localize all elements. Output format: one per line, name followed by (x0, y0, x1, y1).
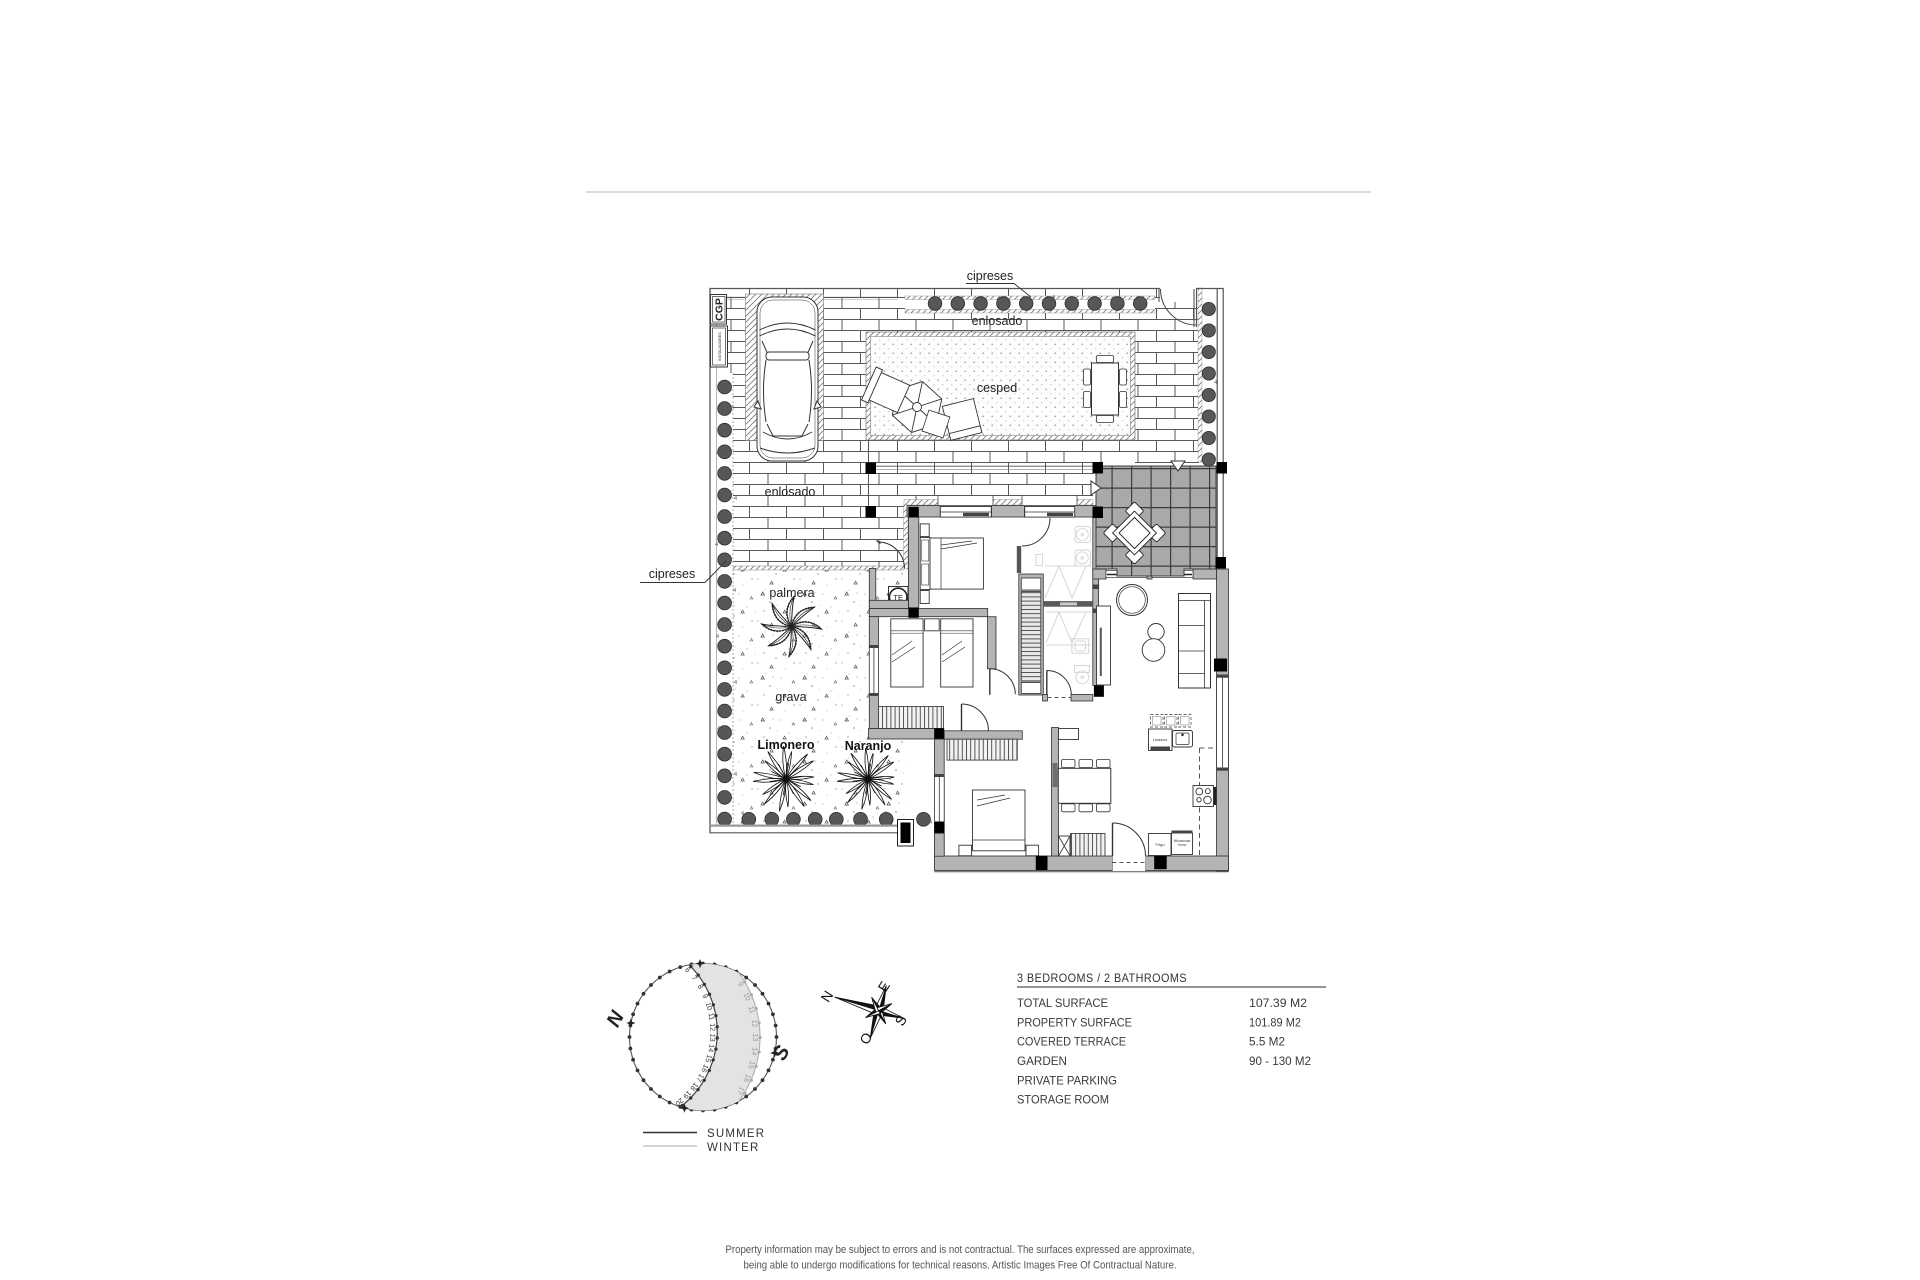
svg-text:PRIVATE PARKING: PRIVATE PARKING (1017, 1073, 1117, 1087)
svg-text:11: 11 (706, 1012, 716, 1021)
svg-text:WINTER: WINTER (707, 1142, 760, 1154)
svg-text:12: 12 (708, 1023, 717, 1031)
svg-text:SUMMER: SUMMER (707, 1128, 765, 1140)
svg-text:Horno: Horno (1178, 843, 1187, 847)
svg-text:4: 4 (1006, 302, 1009, 308)
svg-text:13: 13 (751, 1033, 760, 1041)
svg-text:Limonero: Limonero (758, 738, 815, 752)
svg-text:STORAGE ROOM: STORAGE ROOM (1017, 1093, 1109, 1107)
svg-text:5.5 M2: 5.5 M2 (1249, 1035, 1285, 1049)
svg-text:4: 4 (1203, 434, 1206, 440)
svg-text:4: 4 (734, 772, 737, 778)
svg-text:4: 4 (716, 634, 719, 640)
svg-text:3 BEDROOMS / 2 BATHROOMS: 3 BEDROOMS / 2 BATHROOMS (1017, 971, 1187, 985)
svg-text:cipreses: cipreses (967, 269, 1014, 283)
svg-text:cesped: cesped (977, 381, 1017, 395)
svg-text:4: 4 (741, 811, 744, 817)
svg-text:CGP: CGP (714, 298, 726, 321)
svg-text:4: 4 (884, 811, 887, 817)
svg-text:Frigo: Frigo (1155, 842, 1165, 847)
svg-text:4: 4 (812, 819, 815, 825)
svg-text:Naranjo: Naranjo (845, 739, 892, 753)
svg-text:cipreses: cipreses (649, 567, 696, 581)
svg-text:13: 13 (708, 1033, 718, 1042)
svg-text:4: 4 (929, 820, 932, 826)
svg-text:4: 4 (731, 405, 734, 411)
svg-text:COVERED TERRACE: COVERED TERRACE (1017, 1035, 1126, 1049)
svg-text:grava: grava (775, 690, 806, 704)
svg-text:INSTALACIONES: INSTALACIONES (718, 332, 722, 361)
svg-text:90 - 130 M2: 90 - 130 M2 (1249, 1054, 1311, 1068)
svg-text:GARDEN: GARDEN (1017, 1054, 1067, 1068)
svg-text:4: 4 (717, 726, 720, 732)
svg-text:12: 12 (750, 1019, 760, 1028)
svg-text:enlosado: enlosado (765, 485, 816, 499)
svg-text:being able to undergo modifica: being able to undergo modifications for … (744, 1260, 1177, 1272)
svg-text:4: 4 (1213, 326, 1216, 332)
svg-text:4: 4 (1052, 295, 1055, 301)
svg-text:palmera: palmera (769, 586, 814, 600)
svg-text:4: 4 (1214, 380, 1217, 386)
svg-text:4: 4 (716, 451, 719, 457)
svg-text:TOTAL SURFACE: TOTAL SURFACE (1017, 996, 1108, 1010)
svg-text:101.89 M2: 101.89 M2 (1249, 1015, 1301, 1029)
svg-text:4: 4 (1120, 303, 1123, 309)
svg-text:4: 4 (715, 542, 718, 548)
svg-text:4: 4 (734, 496, 737, 502)
svg-text:4: 4 (960, 296, 963, 302)
svg-text:107.39 M2: 107.39 M2 (1249, 996, 1307, 1010)
svg-text:4: 4 (733, 588, 736, 594)
svg-text:14: 14 (706, 1044, 716, 1053)
svg-text:Lavadora: Lavadora (1153, 738, 1167, 742)
svg-text:4: 4 (734, 680, 737, 686)
svg-text:14: 14 (750, 1047, 760, 1056)
svg-text:Property information may be su: Property information may be subject to e… (726, 1244, 1195, 1256)
svg-text:enlosado: enlosado (972, 314, 1023, 328)
svg-text:PROPERTY SURFACE: PROPERTY SURFACE (1017, 1015, 1132, 1029)
